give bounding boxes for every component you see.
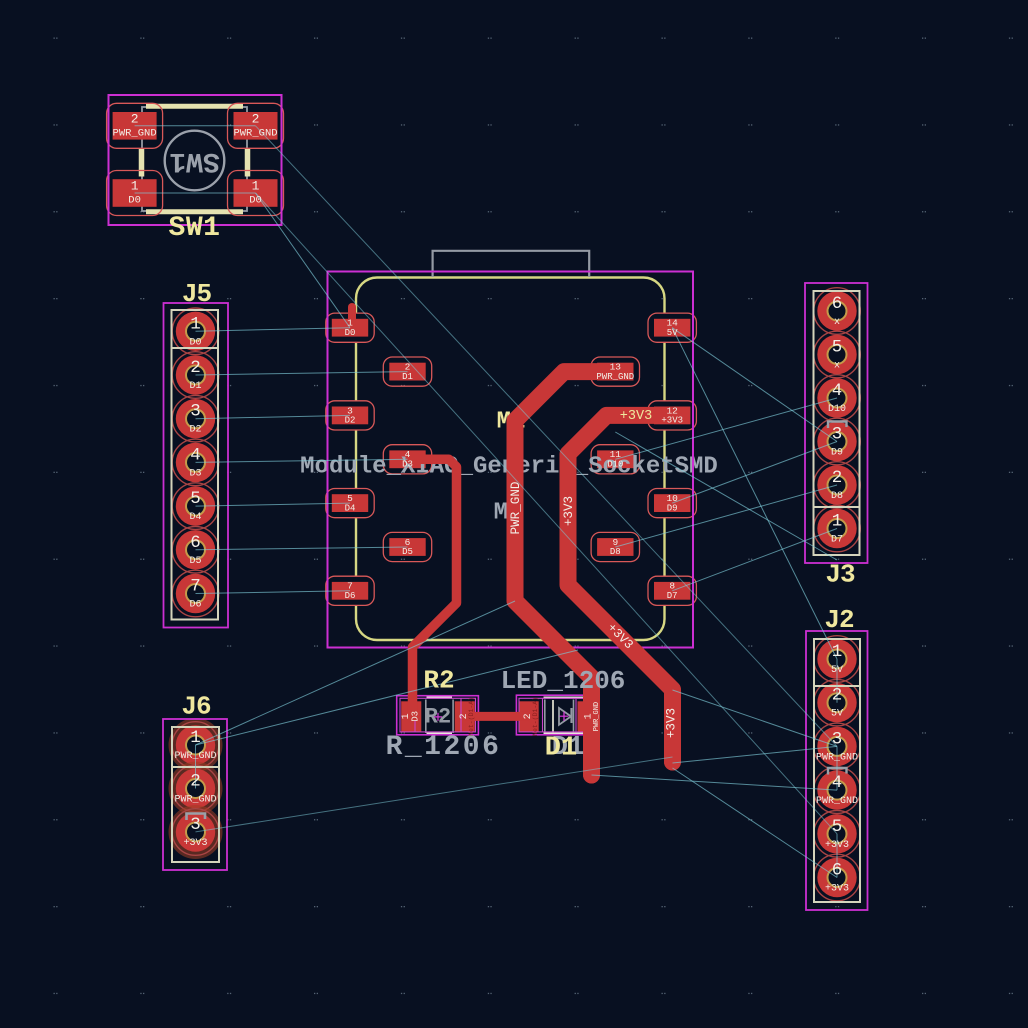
svg-text:D3: D3	[189, 468, 201, 479]
svg-text:5: 5	[832, 817, 843, 837]
svg-text:3: 3	[190, 815, 201, 835]
svg-text:SW1: SW1	[169, 213, 221, 244]
svg-text:PWR_GND: PWR_GND	[174, 751, 216, 762]
svg-text:6: 6	[190, 533, 201, 553]
svg-text:D9: D9	[831, 448, 843, 459]
svg-text:5V: 5V	[831, 709, 843, 720]
svg-text:PWR_GND: PWR_GND	[509, 482, 523, 535]
svg-text:D10: D10	[828, 404, 846, 415]
svg-text:1: 1	[832, 642, 843, 662]
svg-text:+3V3: +3V3	[665, 708, 679, 738]
svg-text:2: 2	[190, 772, 201, 792]
svg-text:R_1206: R_1206	[386, 732, 502, 763]
svg-text:6: 6	[832, 861, 843, 881]
svg-text:D1: D1	[545, 734, 577, 764]
svg-text:+3V3: +3V3	[562, 496, 576, 526]
svg-text:Net-(D1-A): Net-(D1-A)	[532, 697, 539, 736]
svg-text:2: 2	[832, 686, 843, 706]
svg-text:Net-(D1-A): Net-(D1-A)	[468, 697, 475, 736]
svg-text:x: x	[834, 361, 840, 372]
svg-text:D8: D8	[610, 547, 621, 557]
svg-text:D3: D3	[411, 711, 421, 722]
svg-text:D0: D0	[345, 328, 356, 338]
svg-text:D4: D4	[345, 503, 356, 513]
svg-text:D1: D1	[189, 381, 201, 392]
svg-text:3: 3	[832, 729, 843, 749]
svg-text:D9: D9	[667, 503, 678, 513]
svg-text:J6: J6	[181, 692, 211, 722]
svg-text:PWR_GND: PWR_GND	[816, 796, 858, 807]
svg-text:7: 7	[190, 577, 201, 597]
svg-text:2: 2	[252, 111, 260, 126]
svg-text:D0: D0	[249, 195, 262, 207]
svg-text:2: 2	[131, 111, 139, 126]
svg-text:3: 3	[190, 402, 201, 422]
svg-text:1: 1	[252, 179, 260, 194]
svg-text:D1: D1	[402, 372, 413, 382]
svg-text:J2: J2	[824, 605, 854, 635]
svg-text:2: 2	[832, 468, 843, 488]
svg-text:+3V3: +3V3	[825, 840, 849, 851]
svg-text:5V: 5V	[831, 665, 843, 676]
svg-text:LED_1206: LED_1206	[501, 666, 626, 696]
svg-text:2: 2	[190, 358, 201, 378]
svg-text:D10: D10	[607, 460, 623, 470]
svg-text:5: 5	[190, 489, 201, 509]
svg-text:4: 4	[832, 773, 843, 793]
svg-text:+3V3: +3V3	[620, 409, 652, 424]
svg-text:D3: D3	[402, 460, 413, 470]
svg-text:1: 1	[190, 314, 201, 334]
svg-text:1: 1	[584, 713, 595, 719]
svg-text:1: 1	[190, 728, 201, 748]
svg-text:1: 1	[131, 179, 139, 194]
svg-text:D4: D4	[189, 512, 201, 523]
svg-text:6: 6	[832, 294, 843, 314]
svg-text:+3V3: +3V3	[661, 416, 683, 426]
svg-text:3: 3	[832, 425, 843, 445]
svg-text:PWR_GND: PWR_GND	[596, 372, 634, 382]
svg-text:D6: D6	[345, 591, 356, 601]
svg-text:5V: 5V	[667, 328, 678, 338]
svg-text:+3V3: +3V3	[825, 884, 849, 895]
svg-text:D2: D2	[189, 425, 201, 436]
svg-text:SW1: SW1	[169, 145, 219, 176]
svg-text:5: 5	[832, 338, 843, 358]
svg-text:PWR_GND: PWR_GND	[113, 127, 157, 139]
svg-text:J5: J5	[182, 279, 212, 309]
svg-text:D5: D5	[402, 547, 413, 557]
svg-text:D0: D0	[128, 195, 141, 207]
svg-text:D5: D5	[189, 556, 201, 567]
svg-text:4: 4	[832, 381, 843, 401]
svg-text:J3: J3	[825, 560, 855, 590]
svg-text:D0: D0	[189, 337, 201, 348]
svg-text:4: 4	[190, 445, 201, 465]
svg-text:PWR_GND: PWR_GND	[816, 752, 858, 763]
svg-text:x: x	[834, 317, 840, 328]
svg-text:D6: D6	[189, 600, 201, 611]
svg-text:D7: D7	[831, 535, 843, 546]
svg-text:PWR_GND: PWR_GND	[174, 795, 216, 806]
svg-text:R2: R2	[423, 666, 454, 696]
svg-text:PWR_GND: PWR_GND	[233, 127, 277, 139]
svg-text:D8: D8	[831, 491, 843, 502]
svg-text:1: 1	[832, 512, 843, 532]
svg-text:D7: D7	[667, 591, 678, 601]
svg-text:+3V3: +3V3	[183, 838, 207, 849]
svg-text:D2: D2	[345, 416, 356, 426]
